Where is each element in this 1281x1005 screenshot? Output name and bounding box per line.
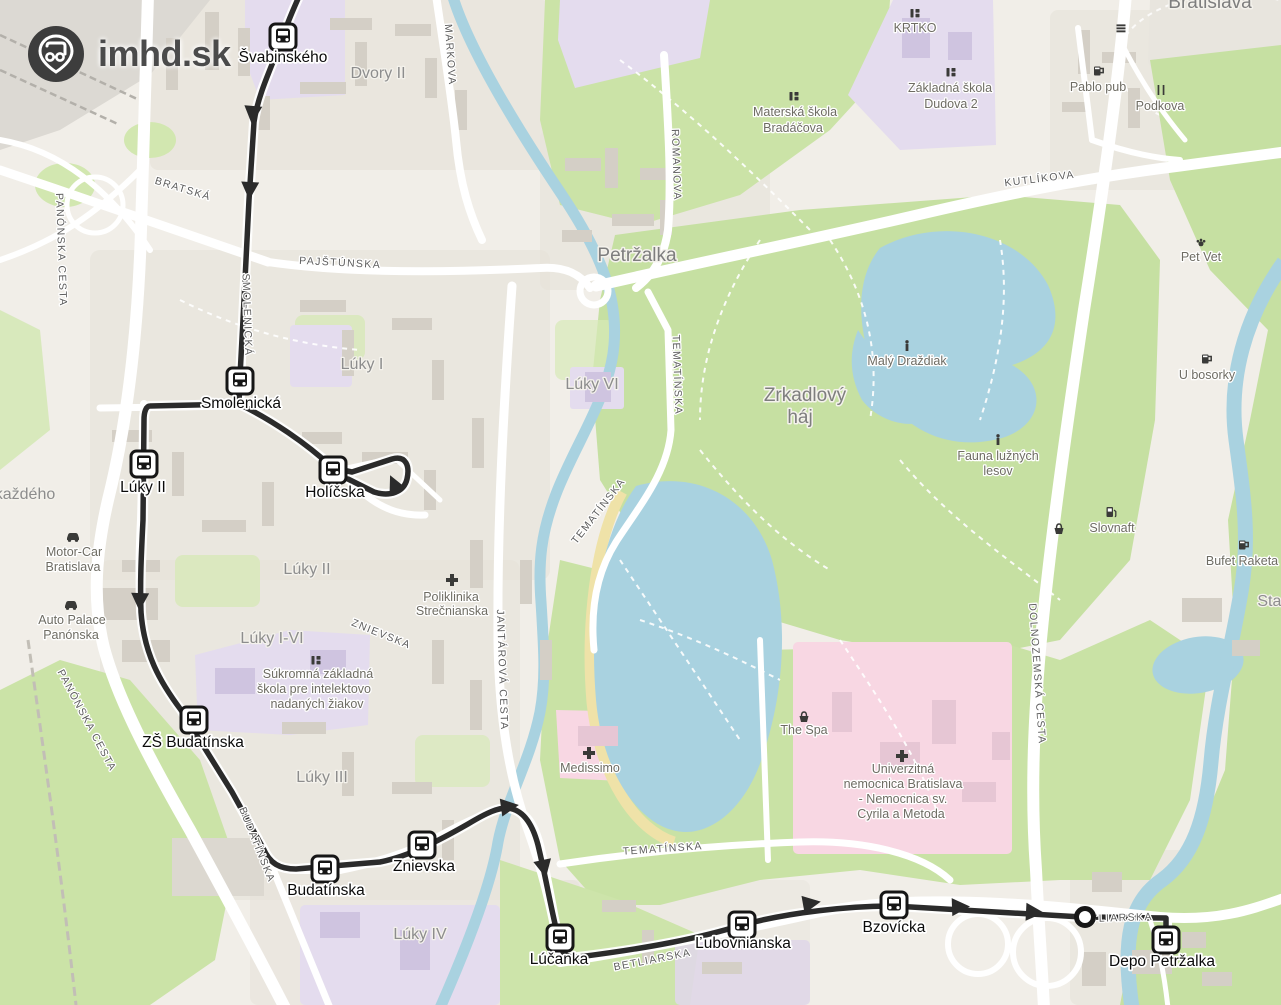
area-label-bratislava: Bratislava bbox=[1168, 0, 1252, 13]
poi-label: lesov bbox=[983, 464, 1013, 478]
area-label-l-ky-iii: Lúky III bbox=[296, 769, 348, 786]
imhd-logo-text: imhd.sk bbox=[98, 33, 231, 75]
bus-stop-icon[interactable] bbox=[312, 856, 338, 882]
street-label-romanova: ROMANOVA bbox=[669, 129, 683, 201]
area-label-l-ky-ii: Lúky II bbox=[283, 561, 330, 578]
poi-label: Medissimo bbox=[560, 761, 620, 775]
poi-label: nemocnica Bratislava bbox=[844, 777, 963, 791]
bus-stop-label: Depo Petržalka bbox=[1109, 953, 1215, 970]
bus-stop-label: Znievska bbox=[393, 858, 455, 875]
bus-stop-icon[interactable] bbox=[547, 925, 573, 951]
poi-label: Panónska bbox=[43, 628, 99, 642]
bus-stop-icon[interactable] bbox=[881, 892, 907, 918]
bus-stop-label: ZŠ Budatínska bbox=[142, 734, 244, 751]
poi-label: - Nemocnica sv. bbox=[859, 792, 948, 806]
bus-stop-label: Smolenická bbox=[201, 395, 281, 412]
pub-icon bbox=[1202, 355, 1211, 364]
area-label-l-ky-i-vi: Lúky I-VI bbox=[240, 630, 303, 647]
route-map[interactable]: MARKOVABRATSKÁPAJŠTÚNSKAROMANOVAKUTLÍKOV… bbox=[0, 0, 1281, 1005]
poi-bench bbox=[1117, 24, 1126, 32]
info-icon bbox=[905, 340, 908, 351]
imhd-logo-icon bbox=[26, 24, 86, 84]
street-label-tliarska: TLIARSKA bbox=[1091, 911, 1153, 925]
info-icon bbox=[996, 434, 999, 445]
terminus-marker[interactable] bbox=[1077, 909, 1094, 926]
bus-stop-label: Švabinského bbox=[239, 49, 328, 66]
bus-stop-icon[interactable] bbox=[270, 24, 296, 50]
poi-label: KRTKO bbox=[894, 21, 937, 35]
area-label-l-ky-vi: Lúky VI bbox=[565, 376, 618, 393]
bus-stop-icon[interactable] bbox=[320, 457, 346, 483]
poi-label: Univerzitná bbox=[872, 762, 935, 776]
poi-label: Slovnaft bbox=[1089, 521, 1135, 535]
bus-stop-label: Ľubovnianska bbox=[695, 935, 791, 952]
poi-label: Motor-Car bbox=[46, 545, 102, 559]
area-label-ka-d-ho: každého bbox=[0, 486, 55, 503]
poi-label: Malý Draždiak bbox=[867, 354, 947, 368]
bus-stop-label: Lúky II bbox=[120, 479, 166, 496]
map-canvas[interactable]: MARKOVABRATSKÁPAJŠTÚNSKAROMANOVAKUTLÍKOV… bbox=[0, 0, 1281, 1005]
poi-label: Fauna lužných bbox=[957, 449, 1038, 463]
bus-stop-label: Bzovícka bbox=[863, 919, 926, 936]
poi-label: The Spa bbox=[780, 723, 827, 737]
area-label-zrkadlov: Zrkadlový bbox=[764, 385, 847, 406]
area-label-dvory-ii: Dvory II bbox=[350, 65, 405, 82]
street-label-bratsk: BRATSKÁ bbox=[153, 174, 212, 203]
poi-label: Súkromná základná bbox=[263, 667, 374, 681]
poi-label: Pablo pub bbox=[1070, 80, 1126, 94]
poi-label: nadaných žiakov bbox=[270, 697, 364, 711]
area-label-h-j: háj bbox=[787, 407, 812, 428]
poi-label: U bosorky bbox=[1179, 368, 1236, 382]
bus-stop-icon[interactable] bbox=[227, 368, 253, 394]
bus-stop-icon[interactable] bbox=[131, 451, 157, 477]
area-label-star: Star bbox=[1257, 593, 1281, 610]
poi-label: Pet Vet bbox=[1181, 250, 1222, 264]
poi-u-bosorky: U bosorky bbox=[1179, 355, 1236, 383]
area-label-l-ky-iv: Lúky IV bbox=[393, 926, 447, 943]
area-label-petr-alka: Petržalka bbox=[597, 245, 677, 266]
bus-stop-icon[interactable] bbox=[181, 707, 207, 733]
poi-label: Podkova bbox=[1136, 99, 1185, 113]
poi-label: Bratislava bbox=[46, 560, 101, 574]
poi-label: Bradáčova bbox=[763, 121, 823, 135]
poi-label: Materská škola bbox=[753, 105, 837, 119]
bench-icon bbox=[1117, 24, 1126, 32]
poi-label: Strečnianska bbox=[416, 604, 488, 618]
bus-stop-icon[interactable] bbox=[1153, 927, 1179, 953]
poi-label: Dudova 2 bbox=[924, 97, 978, 111]
poi-label: škola pre intelektovo bbox=[257, 682, 371, 696]
area-label-l-ky-i: Lúky I bbox=[341, 356, 384, 373]
car-icon bbox=[65, 601, 77, 610]
poi-label: Cyrila a Metoda bbox=[857, 807, 945, 821]
bus-stop-label: Budatínska bbox=[287, 882, 365, 899]
imhd-logo[interactable]: imhd.sk bbox=[26, 24, 231, 84]
poi-label: Základná škola bbox=[908, 81, 992, 95]
bus-stop-icon[interactable] bbox=[409, 832, 435, 858]
bus-stop-label: Holíčska bbox=[305, 484, 365, 501]
poi-label: Auto Palace bbox=[38, 613, 105, 627]
poi-label: Poliklinika bbox=[423, 590, 479, 604]
car-icon bbox=[67, 533, 79, 542]
poi-label: Bufet Raketa bbox=[1206, 554, 1278, 568]
bus-stop-label: Lúčanka bbox=[530, 951, 589, 968]
